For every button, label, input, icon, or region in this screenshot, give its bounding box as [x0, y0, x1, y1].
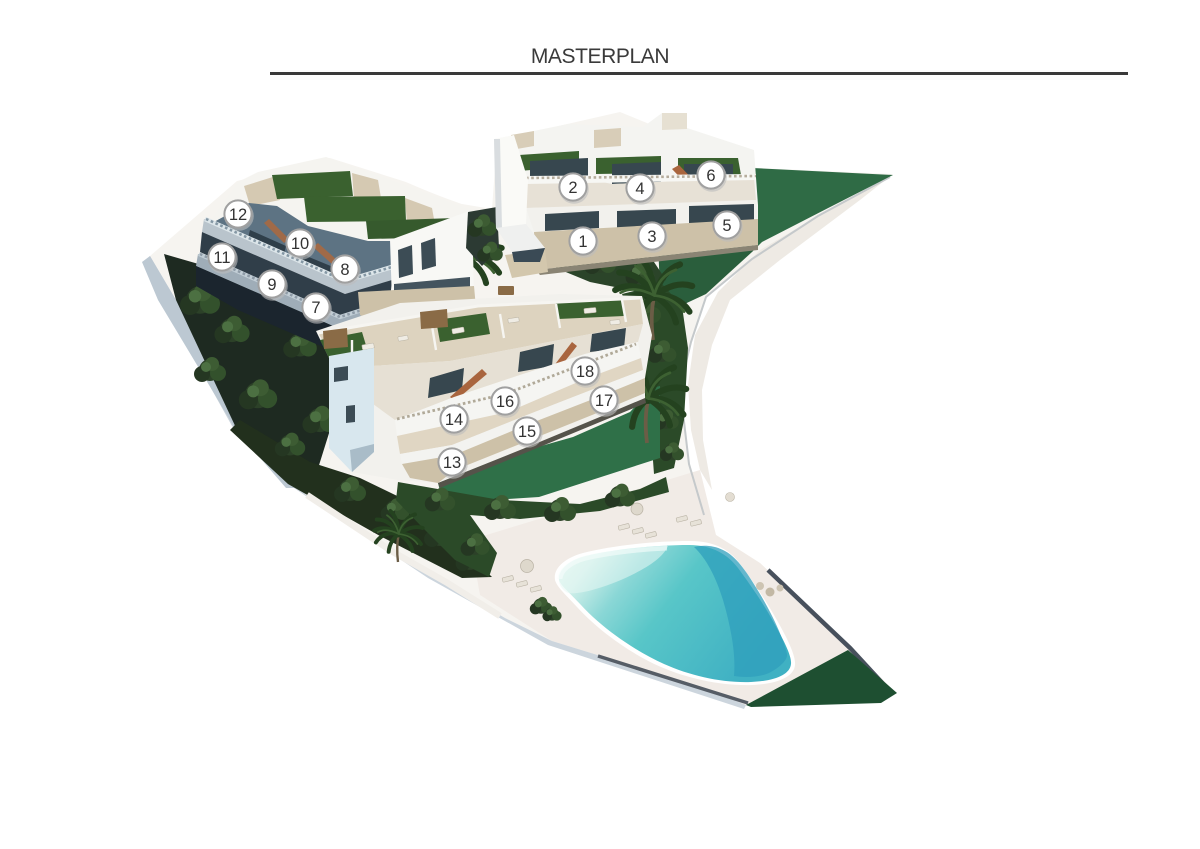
svg-text:13: 13 [443, 454, 461, 472]
svg-text:5: 5 [722, 217, 731, 235]
svg-text:6: 6 [706, 167, 715, 185]
svg-text:15: 15 [518, 423, 536, 441]
svg-text:4: 4 [635, 180, 644, 198]
svg-text:10: 10 [291, 235, 309, 253]
svg-text:9: 9 [267, 276, 276, 294]
svg-text:11: 11 [213, 249, 230, 267]
svg-text:18: 18 [576, 363, 594, 381]
svg-text:8: 8 [340, 261, 349, 279]
svg-text:12: 12 [229, 206, 247, 224]
svg-text:17: 17 [595, 392, 613, 410]
svg-text:16: 16 [496, 393, 514, 411]
svg-text:7: 7 [311, 299, 320, 317]
svg-text:1: 1 [578, 233, 587, 251]
svg-text:3: 3 [647, 228, 656, 246]
svg-text:2: 2 [568, 179, 577, 197]
svg-text:14: 14 [445, 411, 463, 429]
